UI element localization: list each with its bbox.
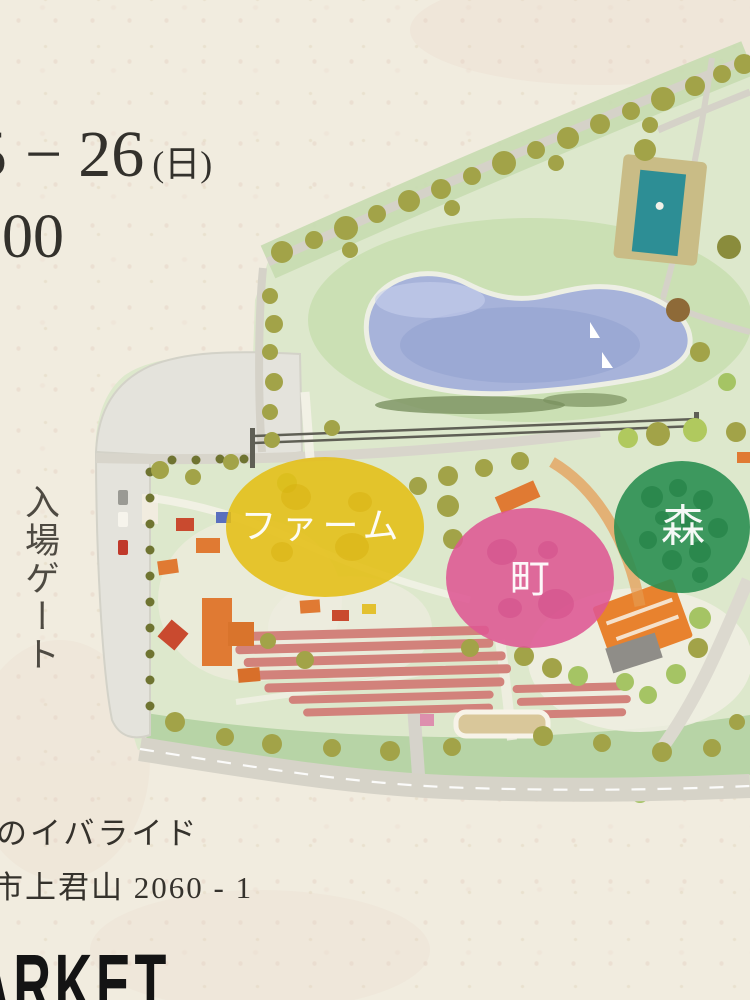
- zone-farm-label: ファーム: [241, 506, 404, 546]
- date-separator: −: [25, 122, 62, 188]
- event-poster: ファーム 町 森 5 − 26 (日) 00: [0, 0, 750, 1000]
- brown-tree: [666, 298, 690, 322]
- zone-forest: 森: [614, 461, 750, 593]
- zone-farm: ファーム: [226, 457, 424, 597]
- entrance-gate-label: 入場ゲート: [22, 484, 57, 699]
- venue-address-fragment: 市上君山 2060 - 1: [0, 872, 253, 903]
- event-date: 5 − 26 (日): [0, 122, 212, 188]
- parked-cars: [118, 490, 128, 555]
- date-weekday: (日): [152, 146, 212, 182]
- date-partial-digit: 5: [0, 122, 7, 188]
- venue-name-fragment: のイバライド: [0, 818, 199, 849]
- event-time-fragment: 00: [2, 206, 64, 268]
- pool: [613, 154, 707, 266]
- zone-town-label: 町: [510, 556, 550, 601]
- brand-wordmark-fragment: ARKET: [0, 942, 170, 1000]
- zone-town: 町: [446, 508, 614, 648]
- zone-forest-label: 森: [661, 502, 705, 551]
- date-day: 26: [78, 122, 144, 188]
